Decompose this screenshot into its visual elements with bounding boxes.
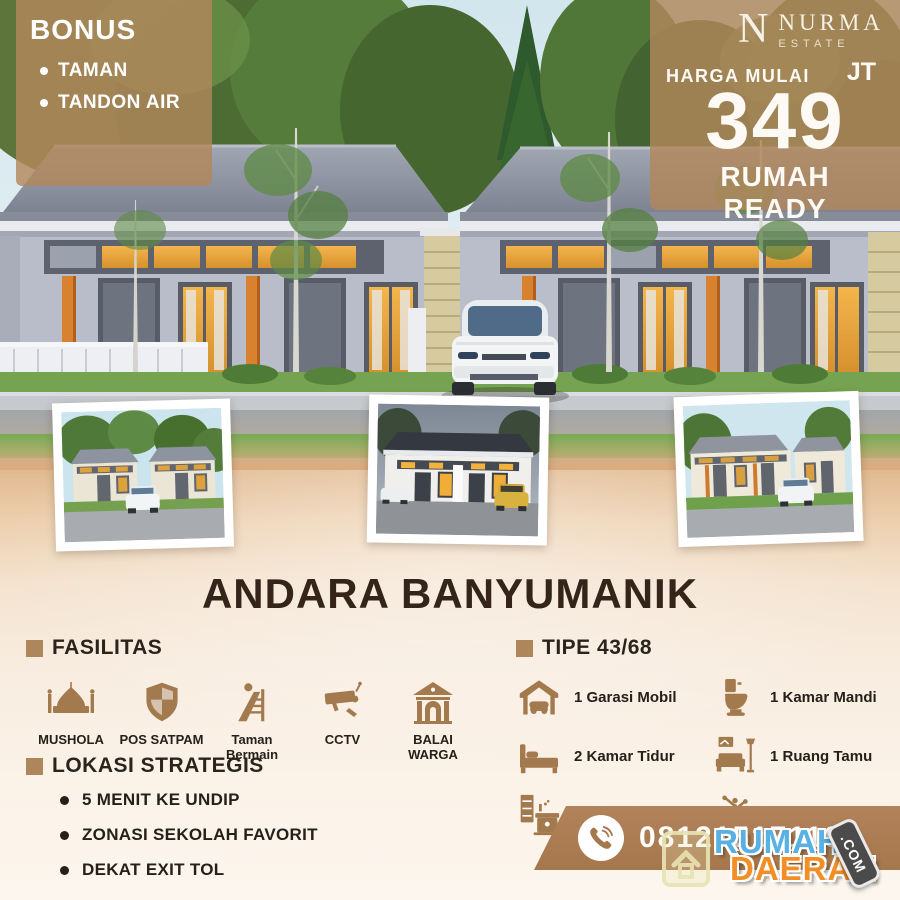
price-amount: 349	[666, 83, 884, 159]
real-estate-poster: BONUS TAMAN TANDON AIR N NURMA ESTATE HA…	[0, 0, 900, 900]
thumbnail-dusk-render	[367, 394, 550, 545]
price-unit: JT	[847, 58, 876, 87]
phone-icon	[578, 815, 624, 861]
bonus-item: TAMAN	[40, 60, 198, 82]
facility-item: MUSHOLA	[26, 674, 116, 763]
n-monogram-icon: N	[738, 11, 769, 49]
facility-item: BALAI WARGA	[388, 674, 478, 763]
spec-item: 1 Ruang Tamu	[712, 735, 892, 777]
brand-logo: N NURMA ESTATE	[666, 10, 884, 50]
toilet-icon	[712, 676, 758, 718]
location-section: LOKASI STRATEGIS 5 MENIT KE UNDIP ZONASI…	[26, 754, 496, 895]
location-item: 5 MENIT KE UNDIP	[60, 790, 496, 810]
garage-icon	[516, 676, 562, 718]
facilities-section: FASILITAS MUSHOLA	[26, 636, 478, 763]
mosque-icon	[47, 674, 95, 726]
thumbnail-day-render-2	[673, 391, 863, 547]
community-hall-icon	[409, 674, 457, 726]
facility-item: POS SATPAM	[117, 674, 207, 763]
location-item: DEKAT EXIT TOL	[60, 860, 496, 880]
bonus-title: BONUS	[30, 14, 198, 46]
cctv-icon	[319, 674, 367, 726]
bullet-dot	[60, 831, 69, 840]
brand-name: NURMA	[778, 10, 884, 36]
shield-icon	[140, 674, 184, 726]
section-square	[516, 640, 533, 657]
location-item: ZONASI SEKOLAH FAVORIT	[60, 825, 496, 845]
bullet-dot	[60, 796, 69, 805]
bullet-dot	[40, 67, 48, 75]
bullet-dot	[60, 866, 69, 875]
spec-heading: TIPE 43/68	[542, 636, 652, 660]
bullet-dot	[40, 99, 48, 107]
spec-item: 1 Kamar Mandi	[712, 676, 892, 718]
price-panel: N NURMA ESTATE HARGA MULAI JT 349 RUMAH …	[650, 0, 900, 210]
thumbnail-day-render-1	[52, 399, 234, 552]
section-square	[26, 758, 43, 775]
bonus-item: TANDON AIR	[40, 92, 198, 114]
sofa-icon	[712, 735, 758, 777]
location-heading: LOKASI STRATEGIS	[52, 754, 264, 778]
spec-item: 2 Kamar Tidur	[516, 735, 712, 777]
house-icon	[654, 827, 718, 894]
bed-icon	[516, 735, 562, 777]
section-square	[26, 640, 43, 657]
bonus-panel: BONUS TAMAN TANDON AIR	[16, 0, 212, 186]
project-title: ANDARA BANYUMANIK	[0, 570, 900, 618]
site-watermark: RUMAH DAERAH .COM	[654, 824, 894, 900]
brand-subtitle: ESTATE	[778, 38, 849, 50]
price-status: RUMAH READY	[666, 161, 884, 225]
playground-slide-icon	[230, 674, 274, 726]
spec-item: 1 Garasi Mobil	[516, 676, 712, 718]
playground-icon-item: Taman Bermain	[207, 674, 297, 763]
facilities-heading: FASILITAS	[52, 636, 162, 660]
facility-item: CCTV	[298, 674, 388, 763]
